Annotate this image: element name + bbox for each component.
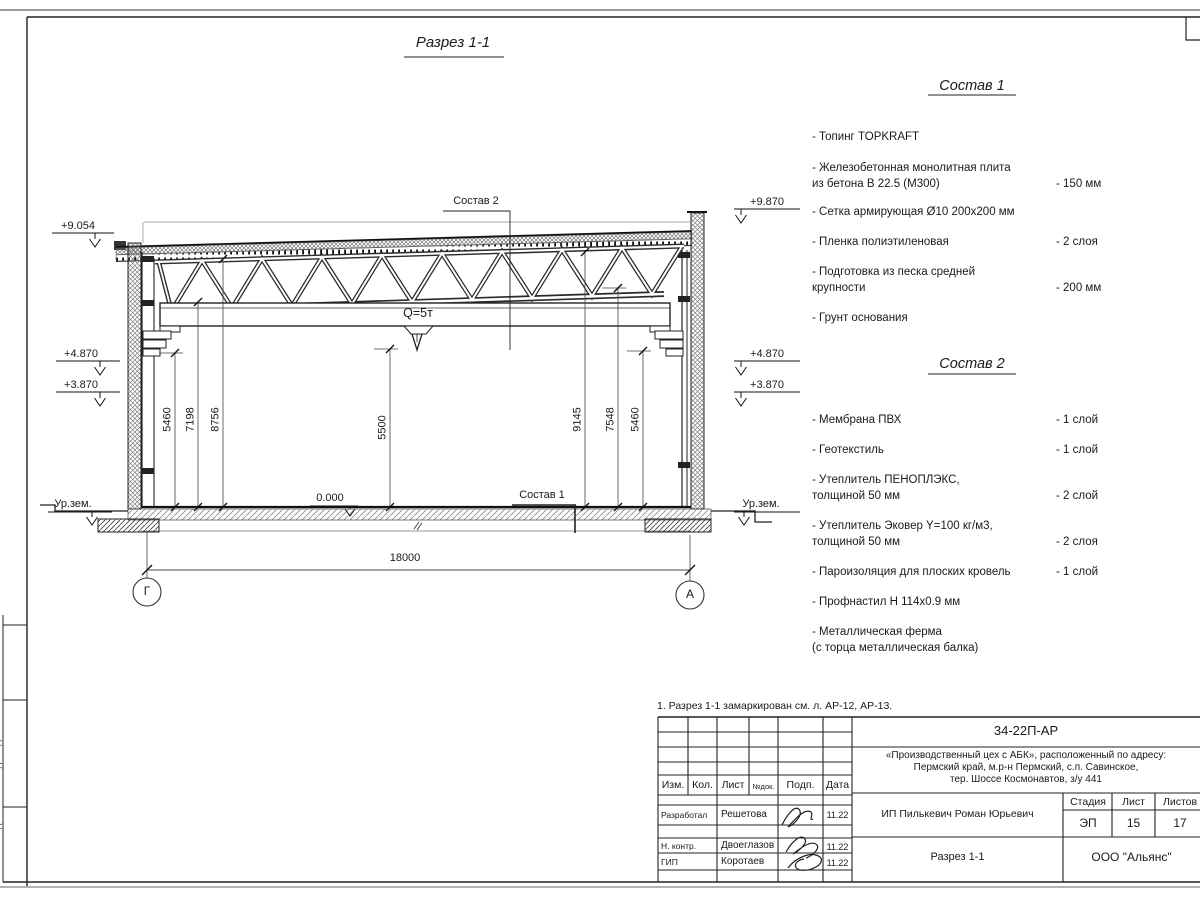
item-text: - Профнастил Н 114x0.9 мм [812,595,960,611]
sostav1-title: Состав 1 [925,78,1019,94]
titleblock-sheet-title: Разрез 1-1 [852,851,1063,863]
client-name: ИП Пилькевич Роман Юрьевич [854,808,1061,820]
section-title: Разрез 1-1 [398,34,508,51]
crane-hook-icon [404,326,433,350]
sheet-label: Лист [1112,796,1155,808]
item-text: - Пароизоляция для плоских кровель [812,565,1011,581]
item-value: - 2 слоя [1056,235,1108,251]
item-text: - Металлическая ферма (с торца металличе… [812,625,978,656]
zero-level-label: 0.000 [310,492,350,504]
name-gip: Коротаев [721,856,764,867]
list-item: - Металлическая ферма (с торца металличе… [812,625,1108,656]
name-ncontrol: Двоеглазов [721,840,774,851]
role-ncontrol: Н. контр. [661,841,696,851]
elev-right-low: +3.870 [742,379,792,391]
item-text: - Мембрана ПВХ [812,413,901,429]
elev-left-roof: +9.054 [53,220,103,232]
axis-bubble-right: А [682,587,698,601]
item-text: - Подготовка из песка средней крупности [812,265,975,296]
doc-number: 34-22П-АР [852,723,1200,738]
item-text: - Железобетонная монолитная плита из бет… [812,161,1011,192]
list-item: - Профнастил Н 114x0.9 мм [812,595,1108,611]
list-item: - Железобетонная монолитная плита из бет… [812,161,1108,192]
item-text: - Утеплитель Эковер Y=100 кг/м3, толщино… [812,519,993,550]
project-address-line1: «Производственный цех с АБК», расположен… [856,750,1196,761]
side-strip-label: Взам. инв. № [0,612,4,712]
col-header-kol: Кол. [688,779,717,791]
crane-capacity-label: Q=5т [396,306,440,320]
item-text: - Топинг TOPKRAFT [812,130,919,146]
dim-center: 5500 [377,401,390,455]
role-gip: ГИП [661,857,678,867]
item-value: - 1 слой [1056,443,1108,459]
side-strip-label: Подп. и дата [0,703,4,803]
project-address-line2: Пермский край, м.р-н Пермский, с.п. Сави… [856,762,1196,773]
dim-left-3: 8756 [210,393,223,447]
axis-bubble-left: Г [139,584,155,598]
dim-left-1: 5460 [162,393,175,447]
dim-right-1: 9145 [572,393,585,447]
date-ncontrol: 11.22 [824,842,851,852]
list-item: - Утеплитель Эковер Y=100 кг/м3, толщино… [812,519,1108,550]
sheet-number: 15 [1112,816,1155,830]
list-item: - Пароизоляция для плоских кровель - 1 с… [812,565,1108,581]
item-text: - Грунт основания [812,311,908,327]
item-value: - 2 слоя [1056,535,1108,551]
item-text: - Утеплитель ПЕНОПЛЭКС, толщиной 50 мм [812,473,960,504]
role-developer: Разработал [661,810,707,820]
item-text: - Пленка полиэтиленовая [812,235,949,251]
dim-right-2: 7548 [605,393,618,447]
right-corbel [655,331,683,356]
name-developer: Решетова [721,809,767,820]
elev-left-low: +3.870 [56,379,106,391]
side-strip-label: Инв. № подл. [0,794,4,894]
list-item: - Пленка полиэтиленовая - 2 слоя [812,235,1108,251]
item-text: - Сетка армирующая Ø10 200x200 мм [812,205,1015,221]
col-header-podp: Подп. [778,779,823,791]
callout-sostav2: Состав 2 [440,195,512,207]
item-value: - 1 слой [1056,565,1108,581]
date-gip: 11.22 [824,858,851,868]
left-corbel [143,331,171,356]
span-dimension [133,532,704,609]
stage-label: Стадия [1065,796,1111,808]
sheet-note: 1. Разрез 1-1 замаркирован см. л. АР-12,… [657,700,892,712]
sostav2-title: Состав 2 [925,356,1019,372]
list-item: - Сетка армирующая Ø10 200x200 мм [812,205,1108,221]
ground-label-right: Ур.зем. [737,498,785,510]
list-item: - Подготовка из песка средней крупности … [812,265,1108,296]
col-header-izm: Изм. [658,779,688,791]
list-item: - Геотекстиль - 1 слой [812,443,1108,459]
item-value: - 2 слой [1056,489,1108,505]
list-item: - Утеплитель ПЕНОПЛЭКС, толщиной 50 мм -… [812,473,1108,504]
stage-value: ЭП [1065,816,1111,830]
elev-left-crane: +4.870 [56,348,106,360]
sheets-label: Листов [1155,796,1200,808]
date-developer: 11.22 [824,810,851,820]
signature-scribbles [782,808,821,870]
ground-label-left: Ур.зем. [50,498,96,510]
item-value: - 150 мм [1056,177,1108,193]
item-text: - Геотекстиль [812,443,884,459]
left-wall [128,243,154,509]
elev-right-roof: +9.870 [742,196,792,208]
dim-right-3: 5460 [630,393,643,447]
drawing-sheet: { "sheet": { "note": "1. Разрез 1-1 зама… [0,0,1200,900]
col-header-list: Лист [717,779,749,791]
dim-left-2: 7198 [185,393,198,447]
company-name: ООО "Альянс" [1063,850,1200,864]
right-wall [678,212,707,509]
dim-span: 18000 [370,552,440,564]
item-value: - 1 слой [1056,413,1108,429]
callout-sostav1: Состав 1 [508,489,576,501]
col-header-ndok: №док. [749,782,778,791]
project-address-line3: тер. Шоссе Космонавтов, з/у 441 [856,774,1196,785]
list-item: - Топинг TOPKRAFT [812,130,1108,146]
item-value: - 200 мм [1056,281,1108,297]
col-header-data: Дата [823,779,852,791]
sheets-total: 17 [1155,816,1200,830]
floor-slab [98,507,711,532]
list-item: - Мембрана ПВХ - 1 слой [812,413,1108,429]
building-section [40,212,772,532]
elev-right-crane: +4.870 [742,348,792,360]
list-item: - Грунт основания [812,311,1108,327]
